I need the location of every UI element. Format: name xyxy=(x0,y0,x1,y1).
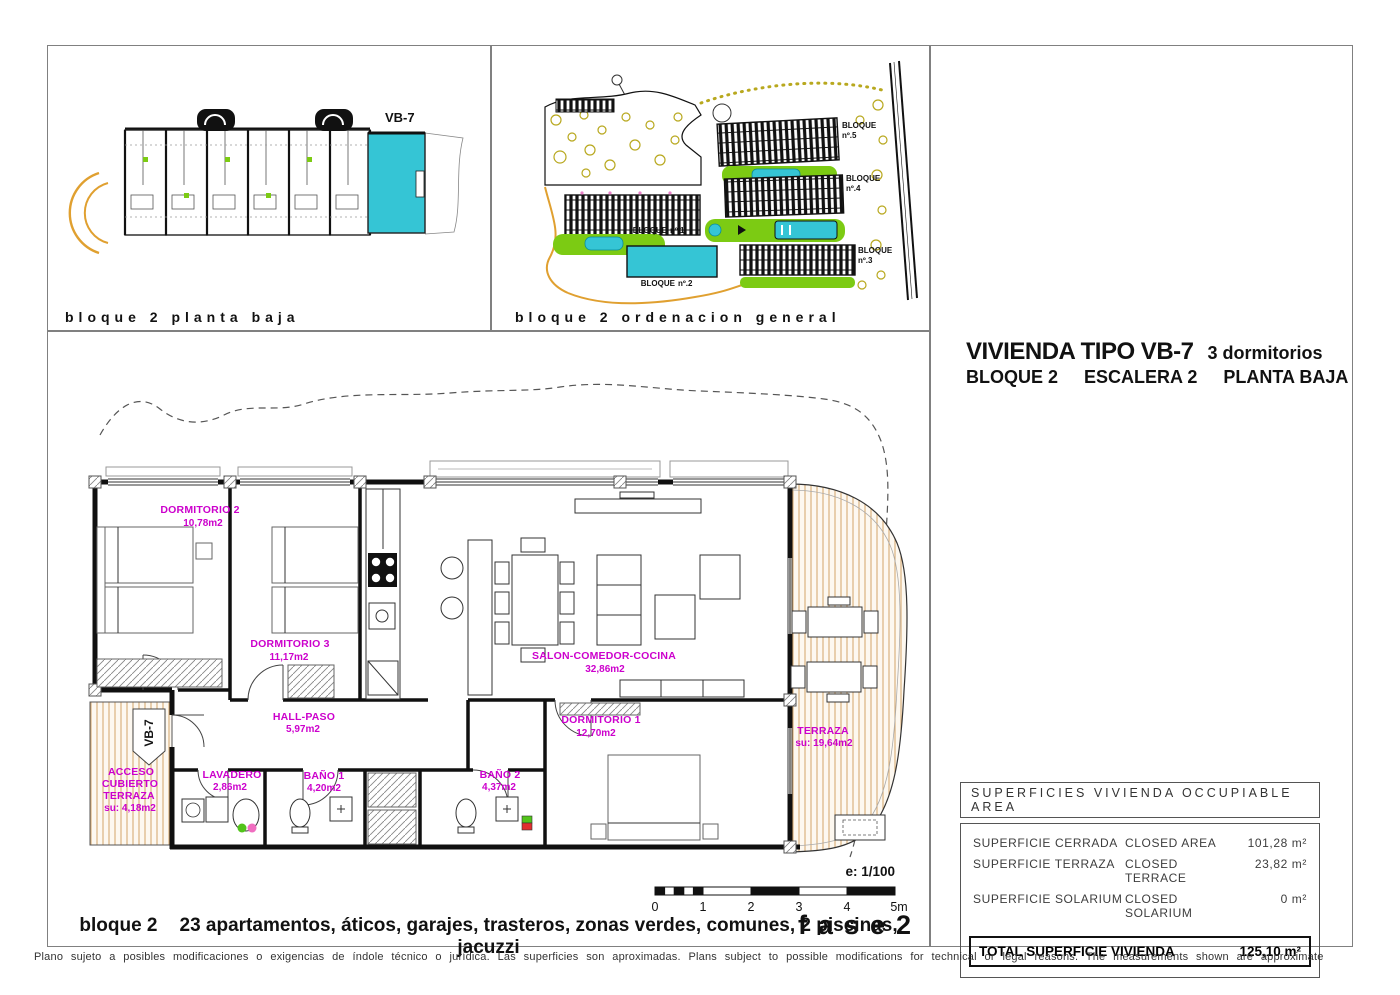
svg-text:2,86m2: 2,86m2 xyxy=(213,782,247,793)
furniture-lavadero xyxy=(182,797,259,831)
svg-text:4,20m2: 4,20m2 xyxy=(307,783,341,794)
siteplan-caption: bloque 2 ordenacion general xyxy=(515,309,841,325)
surfaces-header: SUPERFICIES VIVIENDA OCCUPIABLE AREA xyxy=(960,782,1320,818)
svg-text:2: 2 xyxy=(748,900,755,914)
svg-text:DORMITORIO 2: DORMITORIO 2 xyxy=(160,504,239,516)
label-dormitorio2: DORMITORIO 210,78m2 xyxy=(160,504,239,529)
label-bano2: BAÑO 24,37m2 xyxy=(480,768,521,793)
svg-text:BLOQUE: BLOQUE xyxy=(858,246,893,255)
svg-text:BLOQUE: BLOQUE xyxy=(633,226,668,235)
title-bloque: BLOQUE 2 xyxy=(966,367,1058,388)
bottom-caption-bloque: bloque 2 xyxy=(79,915,157,936)
svg-text:LAVADERO: LAVADERO xyxy=(203,769,262,781)
svg-text:0: 0 xyxy=(652,900,659,914)
siteplan-panel: BLOQUE nº.1 BLOQUE nº.2 BLOQUE nº.3 BLOQ… xyxy=(490,45,930,330)
bloque4-building xyxy=(724,175,843,217)
svg-text:BAÑO 2: BAÑO 2 xyxy=(480,768,521,781)
title-bedrooms: 3 dormitorios xyxy=(1207,343,1322,364)
scale-label: e: 1/100 xyxy=(845,864,895,879)
furniture-bano1 xyxy=(290,797,352,833)
svg-text:BLOQUE: BLOQUE xyxy=(641,279,676,288)
furniture-dormitorio3 xyxy=(272,527,358,698)
entry-arrow-label: VB-7 xyxy=(142,719,156,747)
svg-text:11,17m2: 11,17m2 xyxy=(270,652,309,663)
label-bano1: BAÑO 14,20m2 xyxy=(304,769,345,794)
svg-text:TERRAZA: TERRAZA xyxy=(797,725,849,737)
label-dormitorio3: DORMITORIO 311,17m2 xyxy=(250,638,329,663)
svg-text:HALL-PASO: HALL-PASO xyxy=(273,711,335,723)
floorplan: VB-7 DORMITORIO 210,78m2 DORMITORIO 311,… xyxy=(48,331,929,946)
furniture-dining xyxy=(441,538,574,695)
keyplan-caption: bloque 2 planta baja xyxy=(65,309,300,325)
surfaces-table: SUPERFICIES VIVIENDA OCCUPIABLE AREA SUP… xyxy=(960,782,1320,978)
svg-text:su: 4,18m2: su: 4,18m2 xyxy=(104,803,156,814)
label-hall: HALL-PASO5,97m2 xyxy=(273,711,335,735)
keyplan-drawing: VB-7 xyxy=(70,109,463,253)
bloque3-building xyxy=(740,245,855,275)
furniture-kitchen xyxy=(366,489,400,699)
title-block: VIVIENDA TIPO VB-7 3 dormitorios BLOQUE … xyxy=(966,338,1366,388)
label-acceso: ACCESO CUBIERTO TERRAZA su: 4,18m2 xyxy=(102,766,158,814)
title-escalera: ESCALERA 2 xyxy=(1084,367,1197,388)
svg-text:32,86m2: 32,86m2 xyxy=(585,664,625,675)
svg-text:10,78m2: 10,78m2 xyxy=(183,518,223,529)
svg-text:SALON-COMEDOR-COCINA: SALON-COMEDOR-COCINA xyxy=(532,650,676,662)
svg-text:BLOQUE: BLOQUE xyxy=(842,121,877,130)
svg-text:ACCESO: ACCESO xyxy=(108,766,154,778)
svg-text:BLOQUE: BLOQUE xyxy=(846,174,881,183)
stair-core xyxy=(197,109,235,131)
siteplan-drawing: BLOQUE nº.1 BLOQUE nº.2 BLOQUE nº.3 BLOQ… xyxy=(545,61,917,303)
pool xyxy=(585,237,623,250)
label-salon: SALON-COMEDOR-COCINA32,86m2 xyxy=(532,650,676,675)
keyplan-panel: VB-7 bloque 2 planta baja xyxy=(47,45,490,330)
svg-text:nº.4: nº.4 xyxy=(846,184,861,193)
surfaces-row-cerrada: SUPERFICIE CERRADA CLOSED AREA 101,28 m² xyxy=(973,836,1307,850)
disclaimer-text: Plano sujeto a posibles modificaciones o… xyxy=(34,951,1374,963)
svg-text:5,97m2: 5,97m2 xyxy=(286,724,320,735)
furniture-closets xyxy=(368,773,416,844)
label-dormitorio1: DORMITORIO 112,70m2 xyxy=(561,714,640,739)
svg-text:su: 19,64m2: su: 19,64m2 xyxy=(795,738,853,749)
keyplan-unit-label: VB-7 xyxy=(385,110,415,125)
svg-text:CUBIERTO: CUBIERTO xyxy=(102,778,158,790)
svg-text:4,37m2: 4,37m2 xyxy=(482,782,516,793)
title-main: VIVIENDA TIPO VB-7 xyxy=(966,338,1193,366)
bloque2-building xyxy=(627,246,717,277)
surfaces-row-solarium: SUPERFICIE SOLARIUM CLOSED SOLARIUM 0 m² xyxy=(973,892,1307,920)
bloque5-building xyxy=(717,118,839,166)
furniture-bano2 xyxy=(456,797,518,833)
svg-text:TERRAZA: TERRAZA xyxy=(103,790,155,802)
svg-text:nº.1: nº.1 xyxy=(670,226,685,235)
surfaces-row-terraza: SUPERFICIE TERRAZA CLOSED TERRACE 23,82 … xyxy=(973,857,1307,885)
svg-text:BAÑO 1: BAÑO 1 xyxy=(304,769,345,782)
pool xyxy=(775,221,837,239)
svg-text:nº.5: nº.5 xyxy=(842,131,857,140)
furniture-dormitorio2 xyxy=(97,527,222,687)
stair-core xyxy=(315,109,353,131)
title-planta: PLANTA BAJA xyxy=(1223,367,1348,388)
svg-text:DORMITORIO 1: DORMITORIO 1 xyxy=(561,714,640,726)
svg-text:DORMITORIO 3: DORMITORIO 3 xyxy=(250,638,329,650)
label-lavadero: LAVADERO2,86m2 xyxy=(203,769,262,793)
svg-text:nº.2: nº.2 xyxy=(678,279,693,288)
site-main-road xyxy=(890,61,917,300)
plan-sheet: VB-7 bloque 2 planta baja xyxy=(0,0,1400,995)
svg-text:nº.3: nº.3 xyxy=(858,256,873,265)
svg-text:1: 1 xyxy=(700,900,707,914)
svg-text:12,70m2: 12,70m2 xyxy=(576,728,616,739)
